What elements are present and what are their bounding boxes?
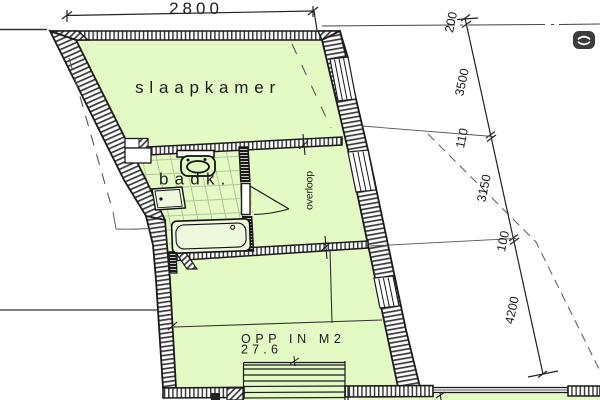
- svg-text:2800: 2800: [169, 0, 223, 18]
- svg-text:slaapkamer: slaapkamer: [135, 78, 281, 97]
- svg-text:27.6: 27.6: [241, 343, 282, 357]
- svg-text:badk.: badk.: [159, 170, 232, 189]
- svg-text:overloop: overloop: [303, 171, 315, 210]
